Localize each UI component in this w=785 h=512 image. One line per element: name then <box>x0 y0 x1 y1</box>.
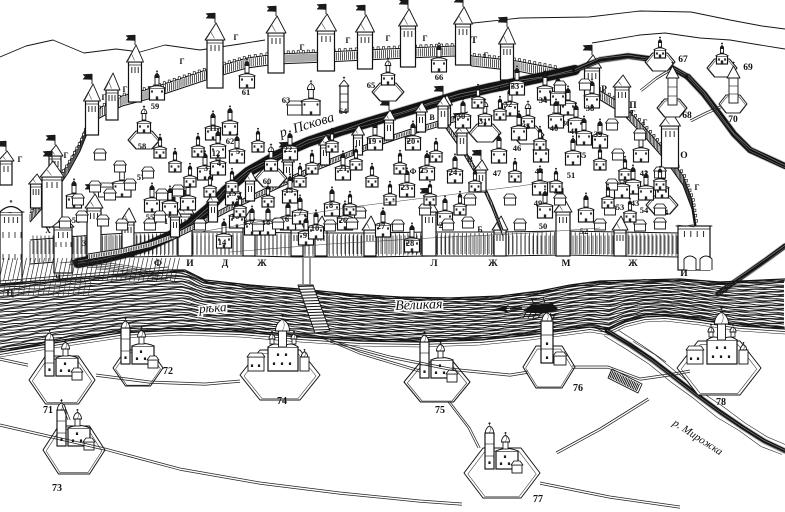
svg-text:39: 39 <box>594 129 603 139</box>
svg-text:40: 40 <box>550 123 559 133</box>
svg-text:Г: Г <box>694 183 699 192</box>
svg-text:65: 65 <box>367 80 376 90</box>
svg-text:Х: Х <box>45 226 51 235</box>
svg-text:27: 27 <box>377 221 386 231</box>
svg-text:73: 73 <box>52 483 62 494</box>
svg-text:23: 23 <box>401 182 410 192</box>
svg-text:38: 38 <box>586 103 595 113</box>
svg-text:77: 77 <box>533 494 543 505</box>
svg-text:Г: Г <box>483 51 488 60</box>
svg-text:Г: Г <box>345 36 350 45</box>
svg-text:46: 46 <box>513 143 522 153</box>
svg-text:С: С <box>498 84 504 93</box>
svg-text:3: 3 <box>204 163 208 173</box>
svg-text:61: 61 <box>242 87 251 97</box>
svg-text:14: 14 <box>218 237 227 247</box>
svg-text:32: 32 <box>504 99 513 109</box>
svg-text:5: 5 <box>236 146 240 156</box>
svg-text:9: 9 <box>303 230 307 240</box>
svg-text:Ж: Ж <box>257 259 267 269</box>
svg-text:78: 78 <box>716 397 726 408</box>
svg-text:26: 26 <box>339 215 348 225</box>
svg-text:Г: Г <box>630 109 635 118</box>
svg-text:Д: Д <box>222 259 229 269</box>
svg-text:17: 17 <box>244 217 253 227</box>
svg-text:69: 69 <box>743 63 753 73</box>
svg-text:53: 53 <box>616 202 625 212</box>
svg-text:30: 30 <box>457 111 466 121</box>
svg-text:60: 60 <box>263 176 272 186</box>
svg-text:Великая: Великая <box>395 297 443 314</box>
svg-text:64: 64 <box>339 106 348 116</box>
svg-text:31: 31 <box>479 116 488 126</box>
svg-text:2: 2 <box>188 211 192 221</box>
svg-text:Л: Л <box>430 259 437 269</box>
svg-text:66: 66 <box>435 72 444 82</box>
svg-text:72: 72 <box>163 366 173 377</box>
svg-text:Р: Р <box>601 85 607 95</box>
svg-text:Ж: Ж <box>628 259 638 269</box>
svg-text:21: 21 <box>339 163 348 173</box>
svg-text:О: О <box>680 151 687 161</box>
svg-text:Ф: Ф <box>410 167 417 176</box>
svg-text:50: 50 <box>539 221 548 231</box>
svg-text:Г: Г <box>642 118 647 127</box>
svg-text:рѣка: рѣка <box>197 299 227 316</box>
svg-text:74: 74 <box>277 396 287 407</box>
svg-text:58: 58 <box>138 141 147 151</box>
svg-text:52: 52 <box>580 226 589 236</box>
svg-text:Г: Г <box>422 34 427 43</box>
svg-text:Ж: Ж <box>488 259 498 269</box>
svg-text:З: З <box>82 239 86 248</box>
svg-text:51: 51 <box>567 170 576 180</box>
svg-text:И: И <box>186 259 194 269</box>
svg-text:Г: Г <box>179 57 184 66</box>
svg-text:76: 76 <box>573 383 583 394</box>
svg-text:Б: Б <box>477 225 482 234</box>
svg-text:24: 24 <box>449 167 458 177</box>
svg-text:25: 25 <box>420 165 429 175</box>
svg-text:Г: Г <box>17 155 22 164</box>
svg-text:62: 62 <box>226 136 235 146</box>
svg-text:В: В <box>429 113 435 122</box>
svg-text:Г: Г <box>122 85 127 94</box>
svg-text:Г: Г <box>63 151 68 160</box>
svg-text:71: 71 <box>43 405 53 416</box>
svg-text:59: 59 <box>151 101 160 111</box>
svg-text:6: 6 <box>285 214 289 224</box>
svg-text:Г: Г <box>233 33 238 42</box>
svg-text:68: 68 <box>682 111 692 121</box>
svg-text:В: В <box>467 155 473 164</box>
svg-text:54: 54 <box>640 205 649 215</box>
svg-text:22: 22 <box>284 144 293 154</box>
svg-text:75: 75 <box>435 405 445 416</box>
svg-text:11: 11 <box>209 123 217 133</box>
svg-text:34: 34 <box>539 95 548 105</box>
svg-text:63: 63 <box>282 95 291 105</box>
svg-text:19: 19 <box>368 136 377 146</box>
svg-text:67: 67 <box>678 55 688 65</box>
svg-text:15: 15 <box>285 185 294 195</box>
svg-text:8: 8 <box>329 200 333 210</box>
svg-text:Г: Г <box>299 43 304 52</box>
svg-text:Г: Г <box>385 34 390 43</box>
svg-text:Т: Т <box>471 36 478 46</box>
svg-text:47: 47 <box>493 168 502 178</box>
svg-text:33: 33 <box>511 81 520 91</box>
svg-text:12: 12 <box>212 148 221 158</box>
svg-text:70: 70 <box>728 115 738 125</box>
svg-text:10: 10 <box>311 223 320 233</box>
svg-text:Г: Г <box>101 93 106 102</box>
svg-text:М: М <box>562 259 571 269</box>
svg-text:20: 20 <box>407 136 416 146</box>
svg-text:И: И <box>680 269 688 279</box>
